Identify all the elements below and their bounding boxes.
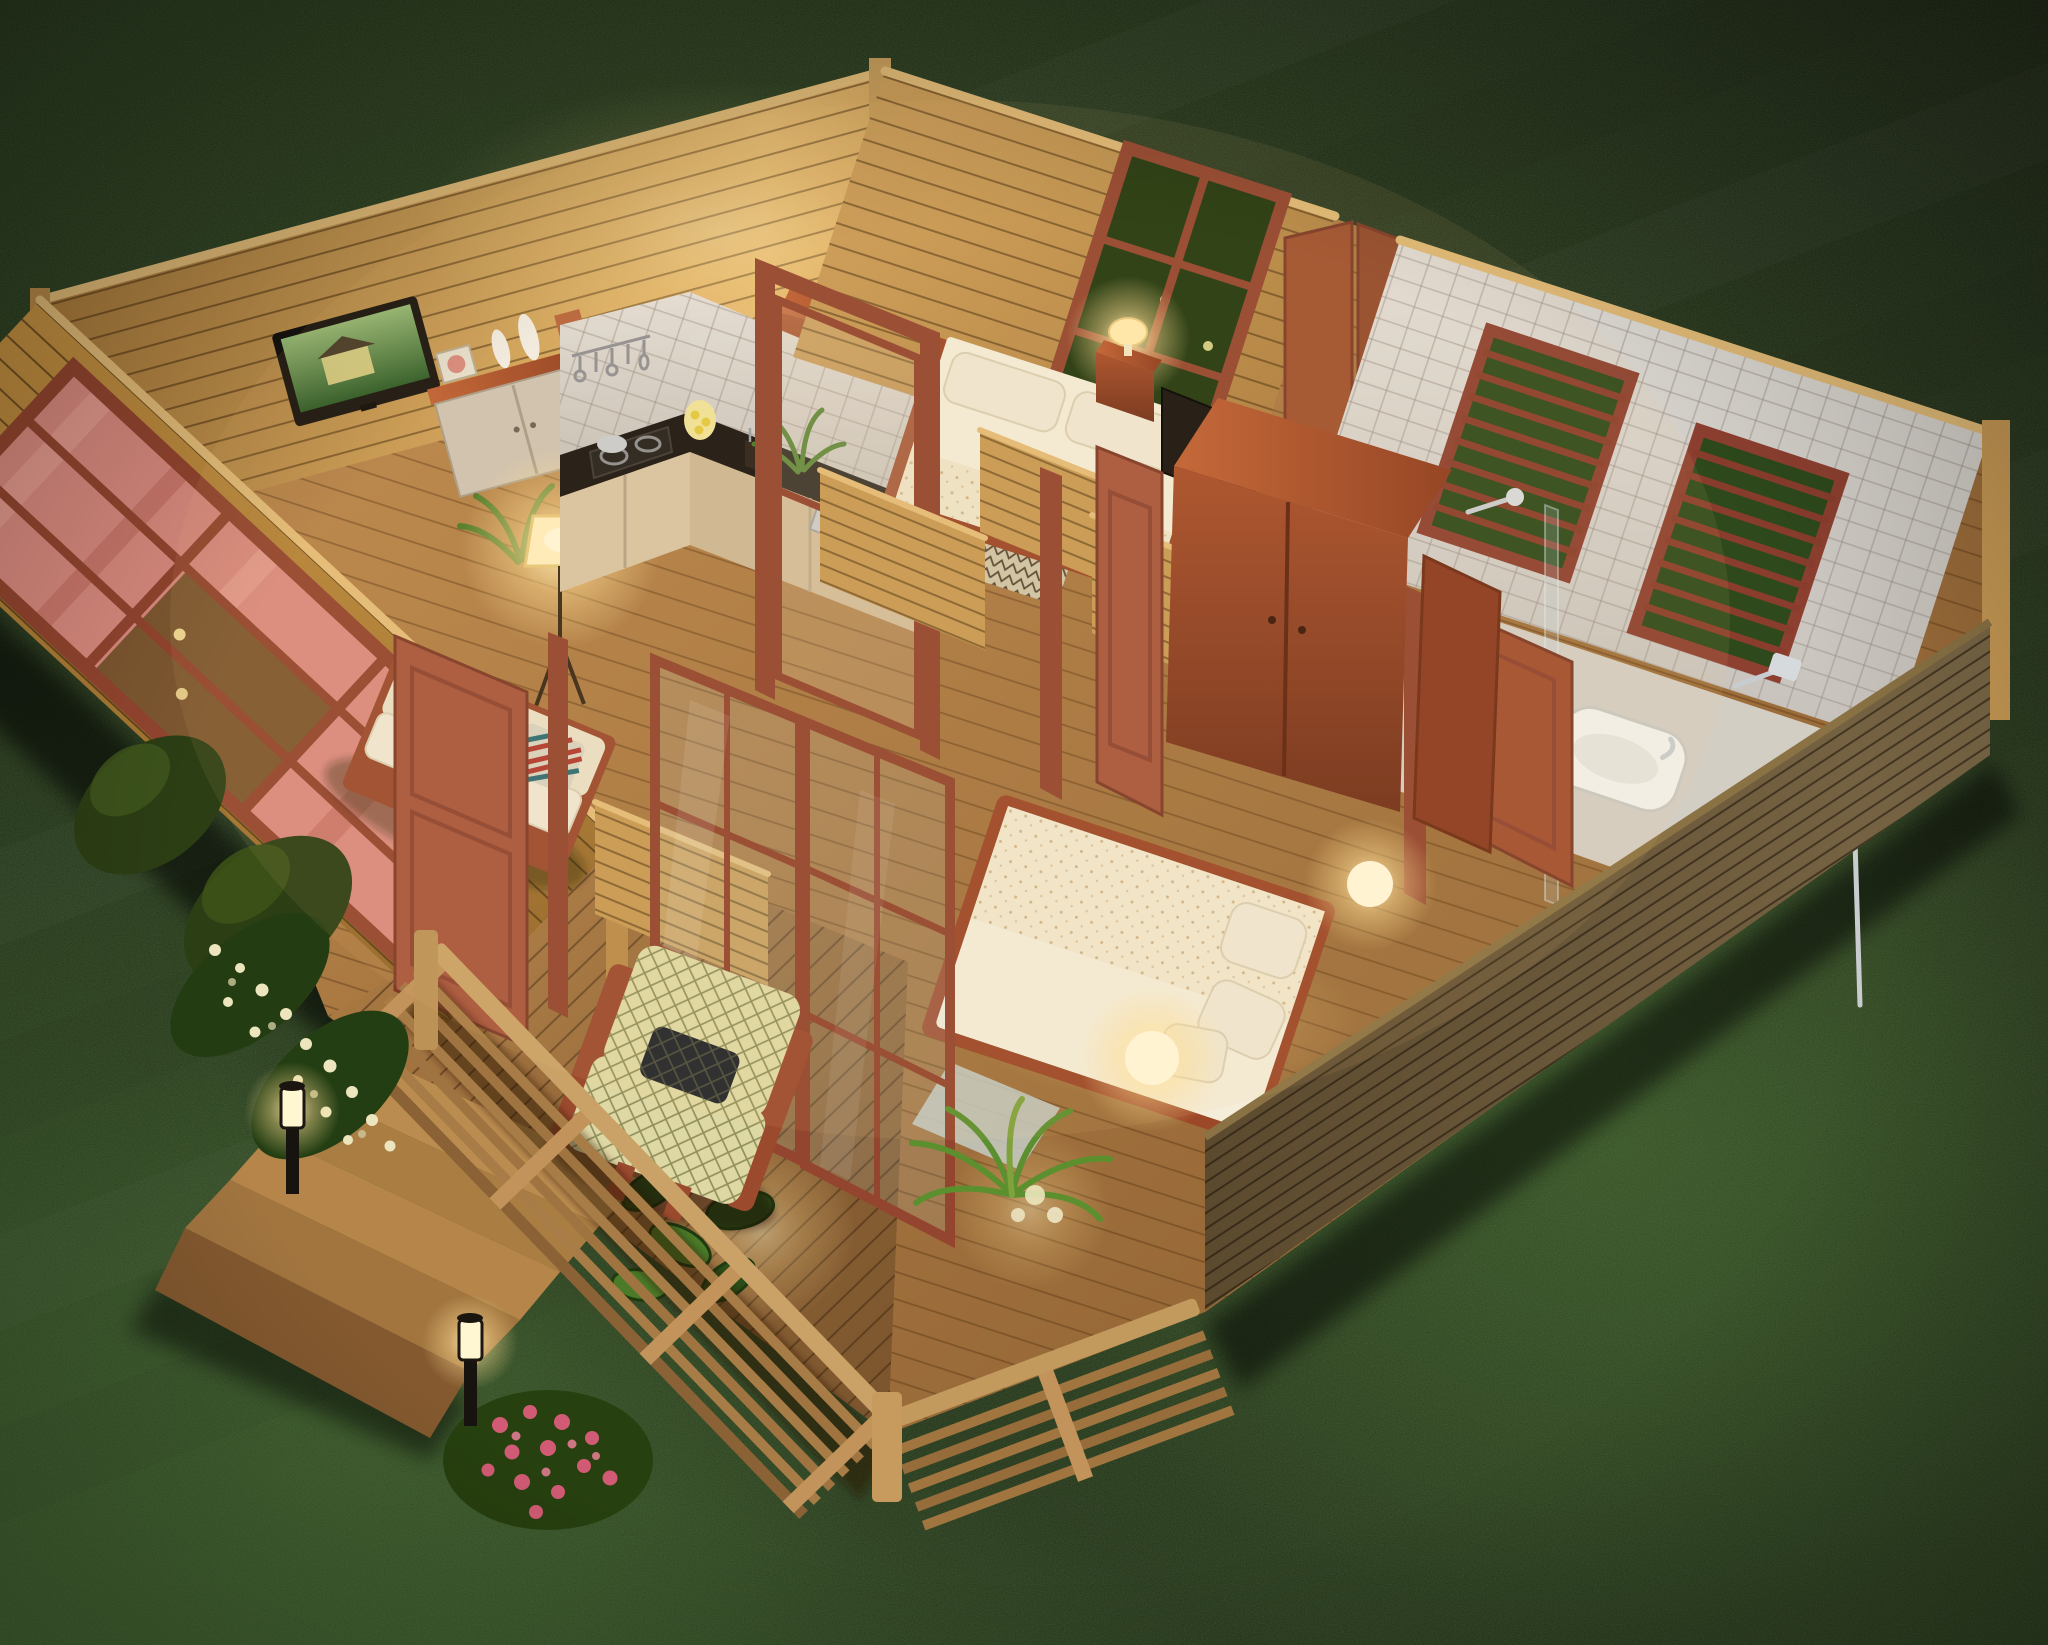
vignette	[0, 0, 2048, 1645]
cabin-floorplan-render	[0, 0, 2048, 1645]
render-canvas	[0, 0, 2048, 1645]
